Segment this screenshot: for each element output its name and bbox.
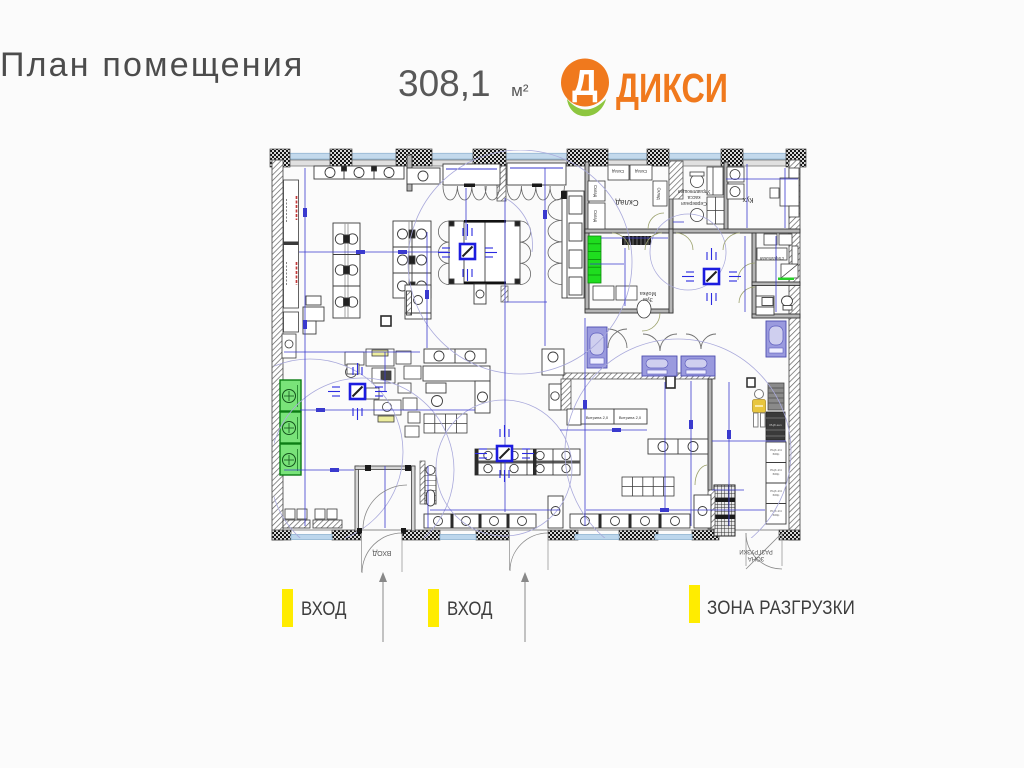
svg-text:ВХОД: ВХОД bbox=[372, 549, 391, 556]
svg-text:Склад: Склад bbox=[634, 169, 647, 174]
svg-text:600р: 600р bbox=[773, 452, 780, 456]
svg-text:Кух: Кух bbox=[742, 196, 754, 203]
svg-text:Склад: Склад bbox=[593, 185, 598, 198]
svg-text:Склад: Склад bbox=[611, 169, 624, 174]
svg-text:Витрина 2,0: Витрина 2,0 bbox=[619, 415, 642, 420]
svg-text:стиральная: стиральная bbox=[759, 256, 784, 261]
svg-text:600р: 600р bbox=[773, 493, 780, 497]
svg-text:Склад: Склад bbox=[657, 187, 662, 200]
svg-text:600р: 600р bbox=[773, 472, 780, 476]
svg-text:Мойка: Мойка bbox=[639, 290, 656, 297]
svg-text:Склад: Склад bbox=[593, 210, 598, 223]
svg-text:Витрина 2,0: Витрина 2,0 bbox=[586, 415, 609, 420]
svg-text:Склад: Склад bbox=[615, 198, 638, 207]
svg-text:РАЗГРУЗКИ: РАЗГРУЗКИ bbox=[739, 548, 772, 554]
svg-text:Управляющая: Управляющая bbox=[677, 188, 710, 194]
svg-text:ЗОНА: ЗОНА bbox=[748, 555, 765, 561]
svg-text:600р: 600р bbox=[773, 513, 780, 517]
svg-text:РЦХ-хол: РЦХ-хол bbox=[769, 423, 781, 427]
